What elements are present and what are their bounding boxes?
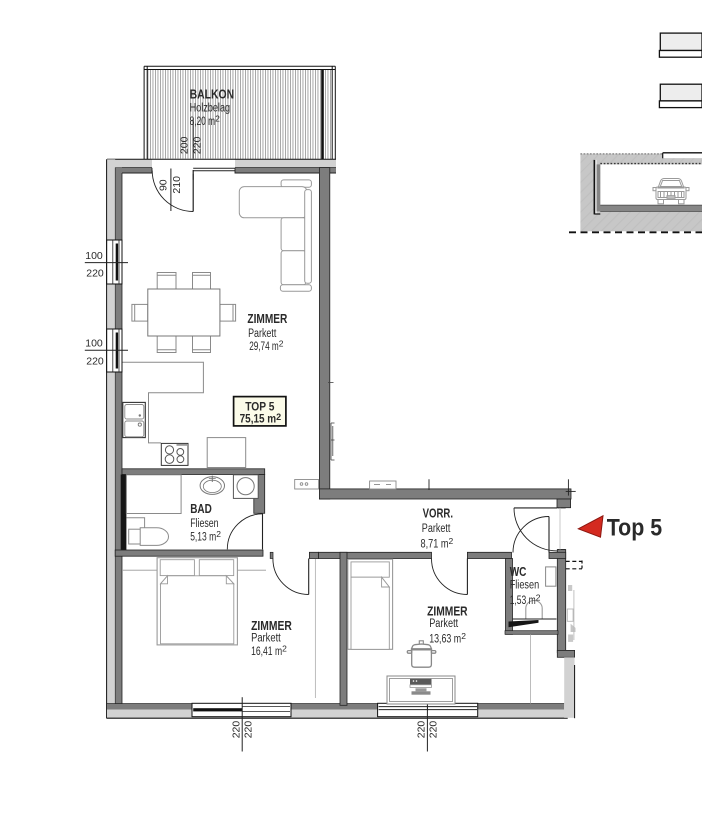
svg-text:ZIMMER: ZIMMER	[251, 618, 292, 633]
svg-text:Top 5: Top 5	[607, 514, 662, 541]
svg-text:BALKON: BALKON	[190, 86, 235, 101]
svg-text:220: 220	[242, 721, 254, 739]
svg-text:ZIMMER: ZIMMER	[427, 604, 468, 619]
svg-text:Parkett: Parkett	[251, 633, 281, 645]
svg-text:WC: WC	[510, 564, 527, 579]
svg-text:220: 220	[428, 721, 440, 739]
svg-text:13,63 m2: 13,63 m2	[429, 631, 466, 646]
svg-text:Holzbelag: Holzbelag	[190, 103, 231, 115]
svg-text:220: 220	[86, 268, 104, 280]
svg-text:29,74 m2: 29,74 m2	[249, 339, 284, 354]
svg-text:75,15 m2: 75,15 m2	[240, 412, 282, 426]
svg-text:Parkett: Parkett	[422, 523, 451, 535]
svg-text:220: 220	[86, 355, 104, 367]
svg-text:VORR.: VORR.	[423, 505, 453, 520]
svg-text:ZIMMER: ZIMMER	[247, 311, 287, 326]
svg-text:Parkett: Parkett	[429, 618, 459, 630]
svg-text:100: 100	[85, 338, 103, 350]
svg-text:Fliesen: Fliesen	[510, 580, 540, 592]
svg-text:210: 210	[171, 176, 183, 194]
svg-text:90: 90	[158, 179, 170, 191]
svg-text:220: 220	[416, 721, 428, 739]
svg-text:100: 100	[85, 250, 103, 262]
svg-text:200: 200	[179, 136, 191, 154]
svg-text:220: 220	[192, 136, 204, 154]
svg-text:Parkett: Parkett	[248, 328, 277, 340]
svg-text:Fliesen: Fliesen	[190, 518, 218, 530]
svg-text:16,41 m2: 16,41 m2	[251, 644, 287, 659]
svg-text:BAD: BAD	[190, 501, 212, 516]
svg-text:220: 220	[230, 721, 242, 739]
